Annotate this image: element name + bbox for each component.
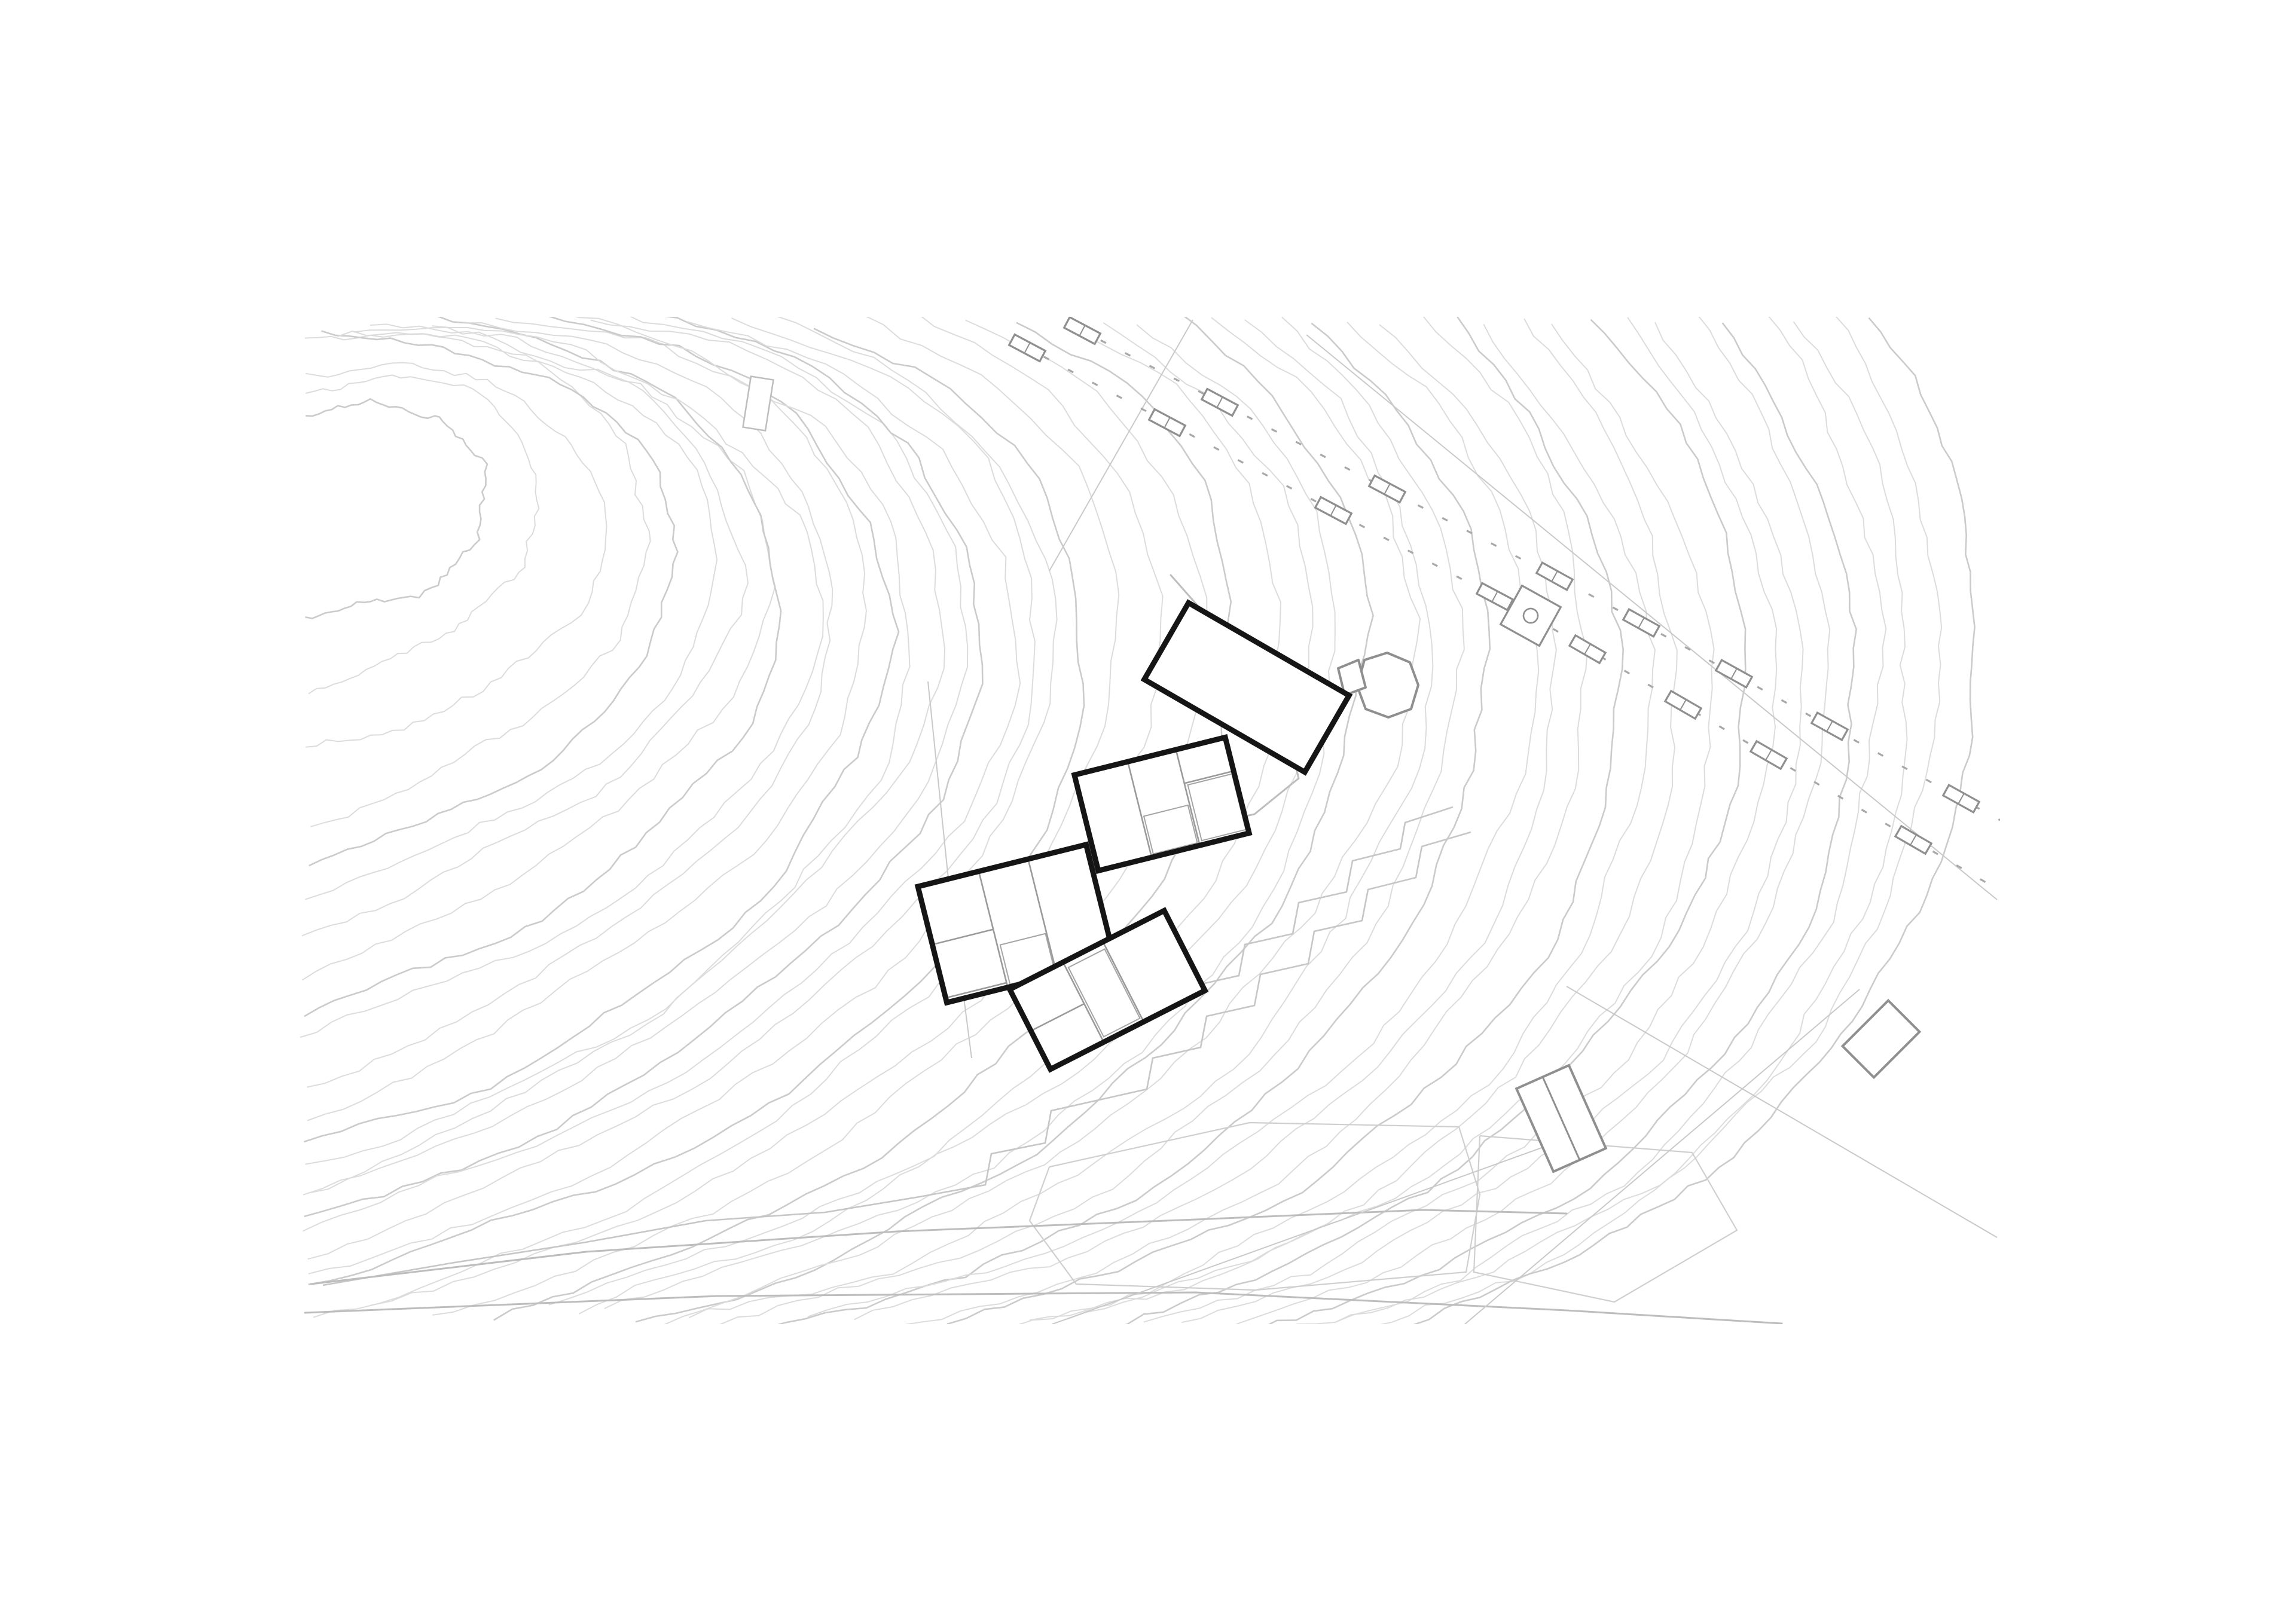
hut-main (1357, 653, 1418, 717)
site-plan-page (0, 0, 2296, 1623)
site-plan-canvas (0, 0, 2296, 1623)
